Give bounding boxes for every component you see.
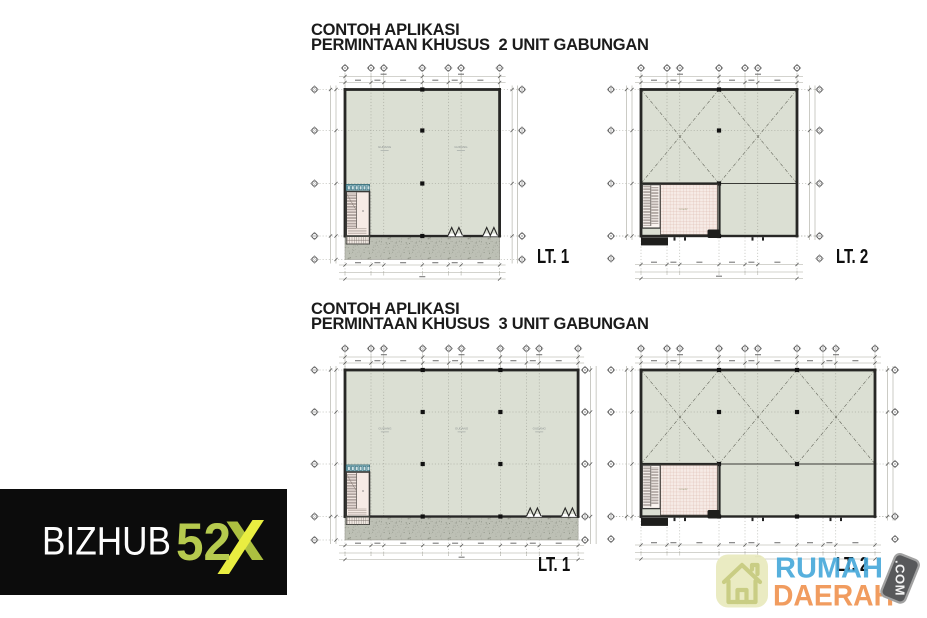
- svg-text:r.mezz: r.mezz: [679, 487, 688, 491]
- svg-text:52: 52: [176, 513, 231, 572]
- svg-text:GUDANG: GUDANG: [533, 427, 547, 431]
- svg-text:BIZHUB: BIZHUB: [42, 520, 171, 564]
- svg-text:GUDANG: GUDANG: [455, 427, 469, 431]
- svg-text:DAERAH: DAERAH: [773, 580, 894, 613]
- svg-text:GUDANG: GUDANG: [378, 145, 392, 149]
- svg-text:.COM: .COM: [893, 560, 908, 596]
- svg-text:r.mezz: r.mezz: [679, 207, 688, 211]
- svg-text:GUDANG: GUDANG: [454, 145, 468, 149]
- svg-text:GUDANG: GUDANG: [378, 427, 392, 431]
